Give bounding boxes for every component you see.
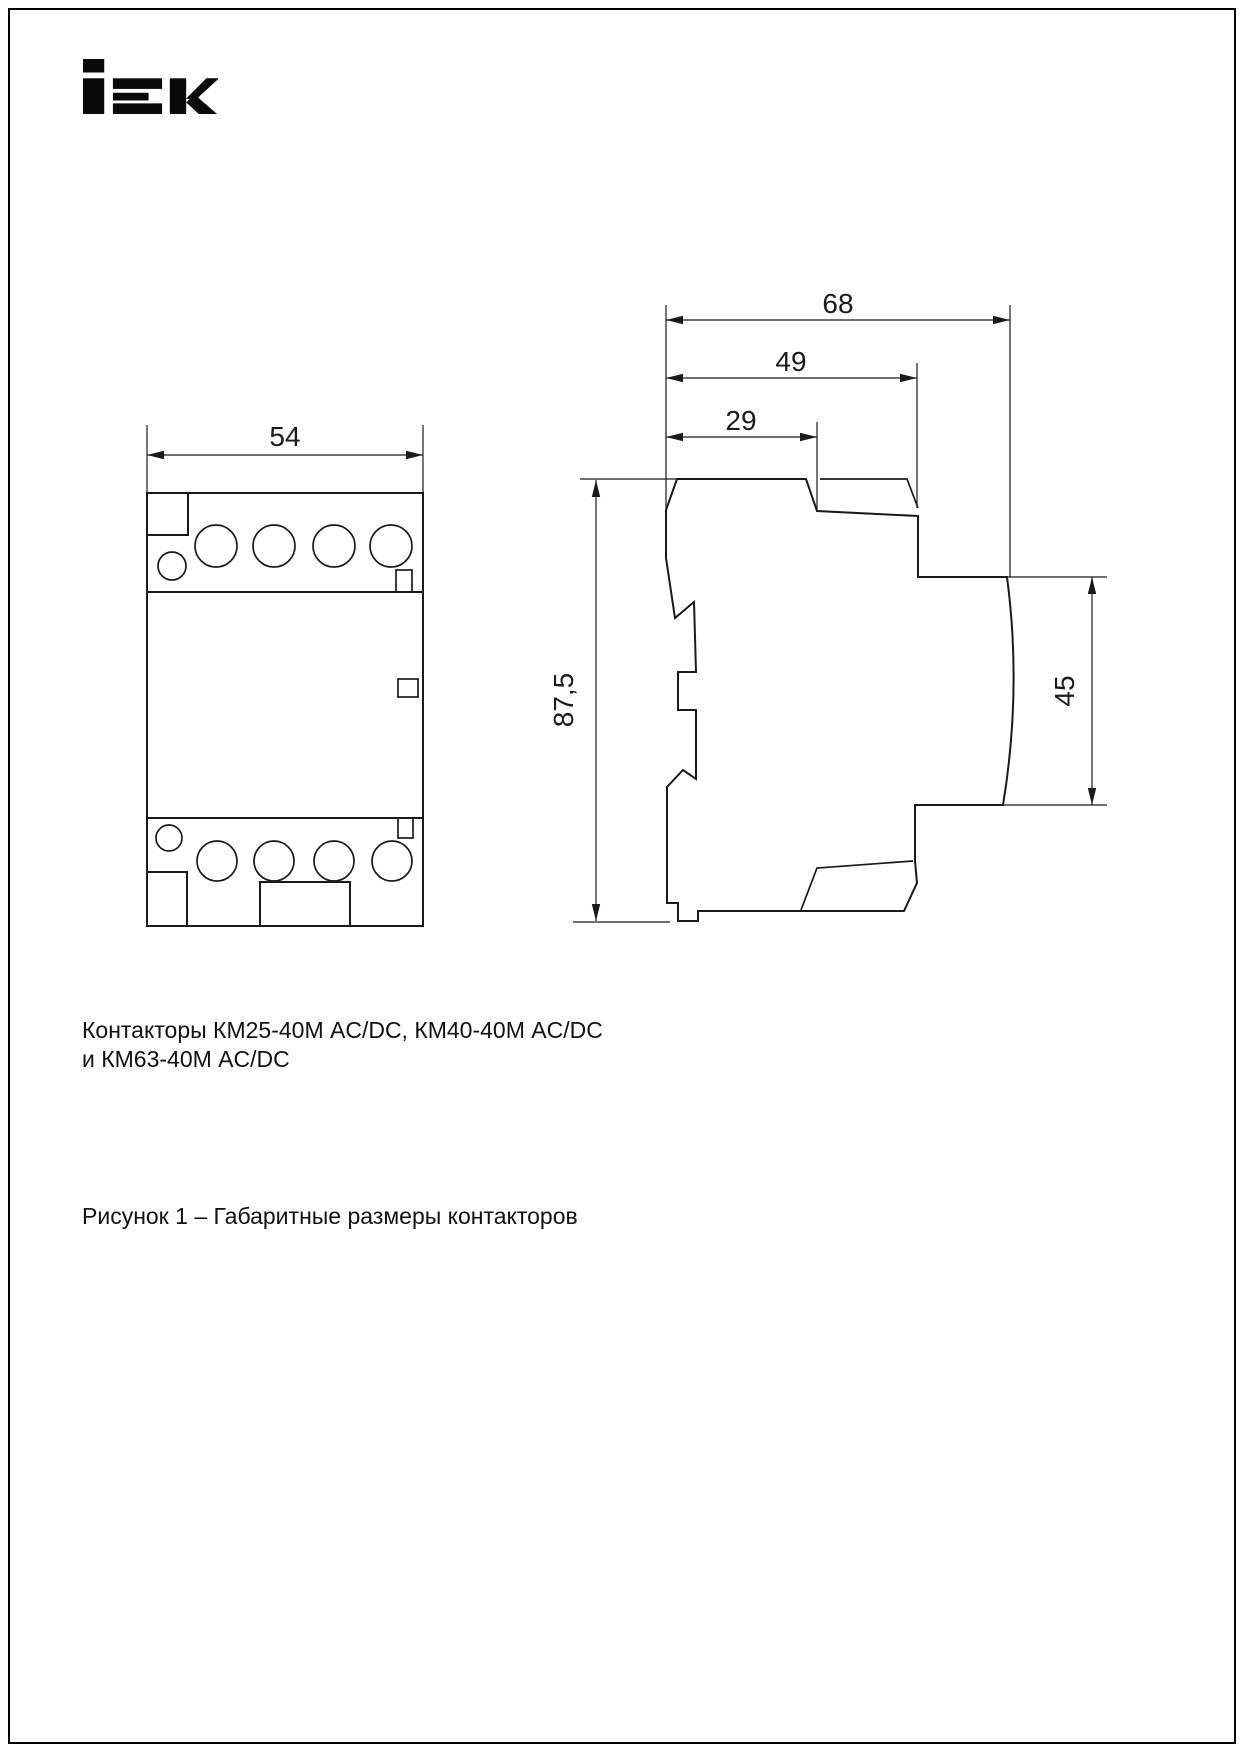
front-bottom-center-notch — [260, 882, 350, 926]
front-bottom-screw-4 — [372, 841, 412, 881]
front-top-indicator — [396, 570, 412, 592]
front-top-screw-2 — [253, 525, 295, 567]
front-top-screw-3 — [313, 525, 355, 567]
side-bottom-step-contour — [801, 861, 913, 910]
front-top-screw-1 — [195, 525, 237, 567]
datasheet-page: 54 — [0, 0, 1244, 1752]
front-view-drawing: 54 — [100, 400, 460, 960]
side-view-drawing: 68 49 29 87,5 45 — [520, 260, 1140, 960]
front-bottom-aux-screw — [156, 825, 182, 851]
front-bottom-screw-1 — [197, 841, 237, 881]
dim-54-label: 54 — [269, 421, 300, 452]
iek-logo — [83, 58, 218, 115]
front-middle-window — [398, 679, 418, 697]
dim-29-label: 29 — [725, 405, 756, 436]
front-top-screw-4 — [370, 525, 412, 567]
front-top-aux-screw — [158, 552, 186, 580]
side-profile-outline — [666, 479, 1014, 921]
side-top-step-contour — [820, 479, 918, 508]
front-bottom-left-notch — [147, 872, 187, 926]
dim-68-label: 68 — [822, 288, 853, 319]
figure-caption: Рисунок 1 – Габаритные размеры контактор… — [82, 1203, 578, 1230]
front-bottom-screw-3 — [314, 841, 354, 881]
front-bottom-indicator — [398, 818, 413, 838]
dim-87-label: 87,5 — [548, 673, 579, 728]
product-caption-line2: и КМ63-40М AC/DC — [82, 1045, 603, 1074]
dim-45-label: 45 — [1049, 675, 1080, 706]
product-caption: Контакторы КМ25-40М AC/DC, КМ40-40М AC/D… — [82, 1016, 603, 1074]
front-body-outline — [147, 493, 423, 926]
front-top-left-notch — [147, 493, 188, 535]
product-caption-line1: Контакторы КМ25-40М AC/DC, КМ40-40М AC/D… — [82, 1016, 603, 1045]
front-bottom-screw-2 — [254, 841, 294, 881]
dim-49-label: 49 — [775, 346, 806, 377]
